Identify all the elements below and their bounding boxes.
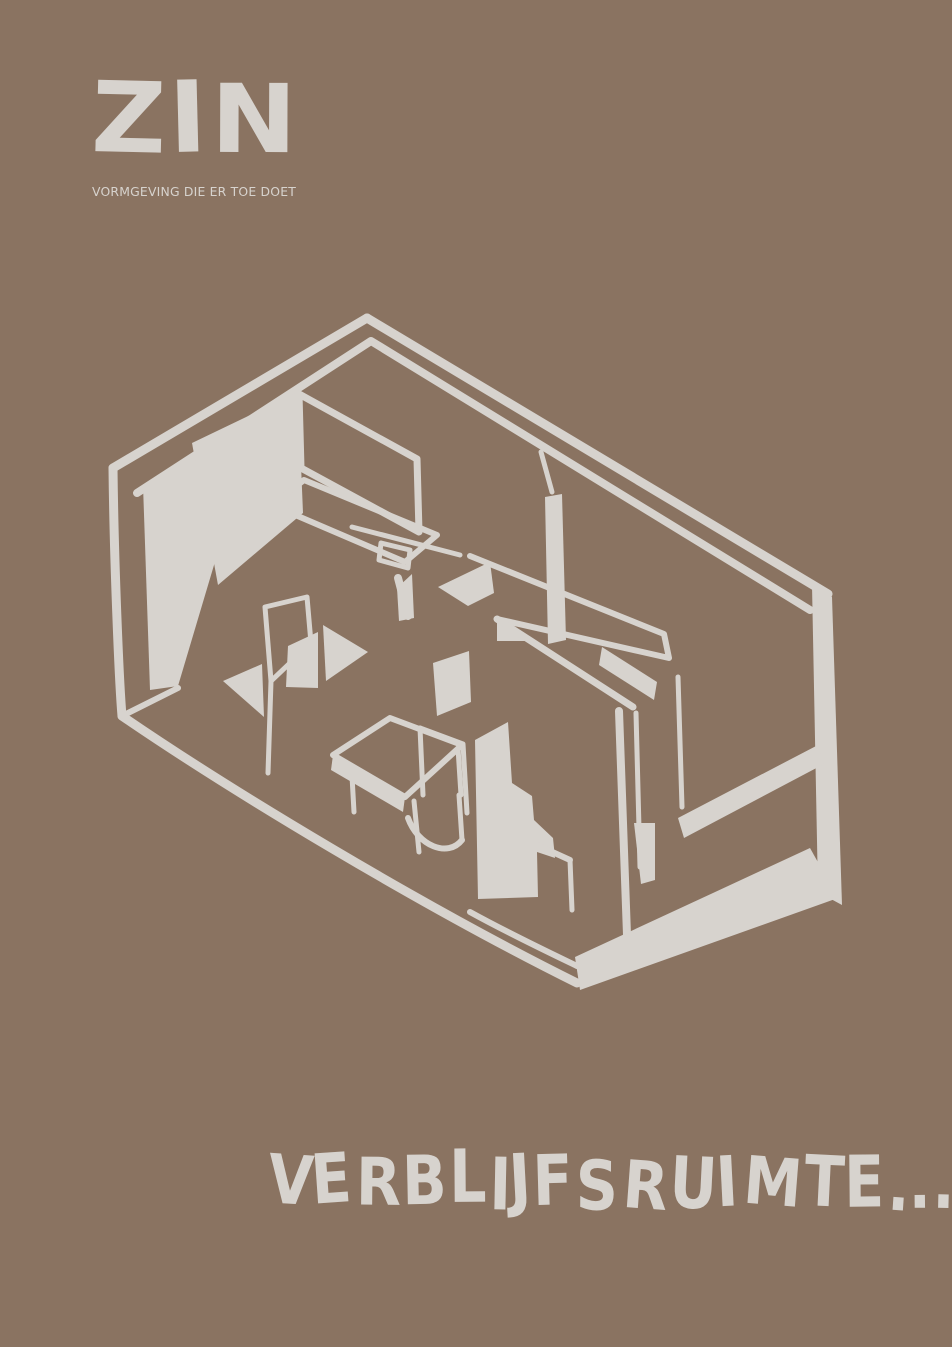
room-shell	[113, 318, 828, 983]
chair-back-left	[223, 664, 264, 717]
floor-lamp	[541, 452, 566, 644]
poster: ZIN VORMGEVING DIE ER TOE DOET	[0, 0, 952, 1347]
chair-back-right	[323, 625, 368, 681]
chair-panel	[433, 651, 471, 716]
meeting-table-group	[223, 597, 471, 852]
chair-silhouette	[475, 722, 572, 910]
screen-panel	[299, 394, 419, 532]
headline: VERBLIJFSRUIMTE...	[264, 1109, 924, 1217]
